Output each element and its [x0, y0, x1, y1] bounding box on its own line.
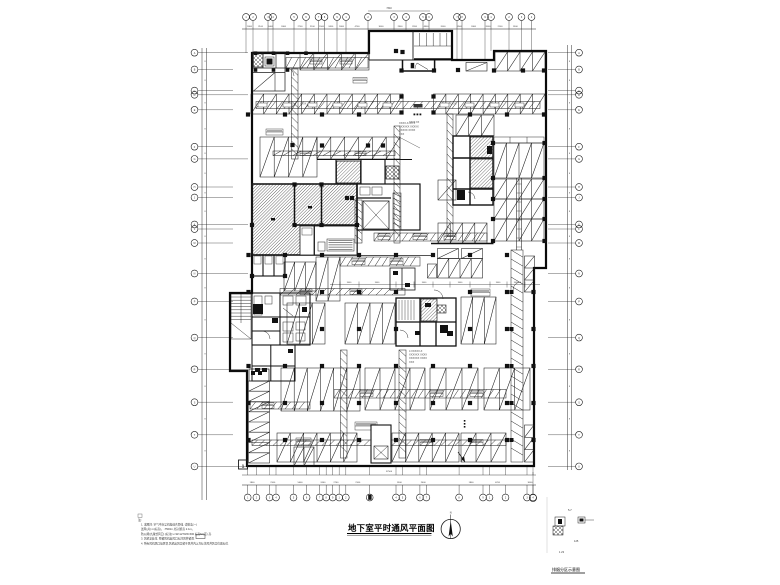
- svg-text:3500: 3500: [457, 26, 463, 28]
- svg-text:2100: 2100: [270, 482, 276, 484]
- svg-text:2000: 2000: [441, 26, 447, 28]
- svg-text:XXXXX XXXX: XXXXX XXXX: [399, 128, 416, 132]
- svg-text:1:150: 1:150: [426, 529, 433, 532]
- svg-text:2000: 2000: [486, 26, 492, 28]
- svg-text:M: M: [578, 242, 580, 245]
- svg-text:2100: 2100: [498, 26, 504, 28]
- svg-text:7340: 7340: [386, 7, 392, 10]
- svg-text:防火阀(九越式风口) [标注] L×W×H/70/W-50: 防火阀(九越式风口) [标注] L×W×H/70/W-500 标高M (压) 高…: [141, 532, 212, 536]
- svg-text:XXXXXX XXXXX: XXXXXX XXXXX: [399, 125, 419, 129]
- svg-text:XXXX: XXXX: [450, 103, 457, 106]
- svg-text:125: 125: [574, 539, 579, 543]
- svg-text:1800: 1800: [250, 482, 256, 484]
- svg-text:3000: 3000: [528, 482, 534, 484]
- svg-text:1500: 1500: [397, 482, 403, 484]
- svg-text:4700: 4700: [355, 26, 361, 28]
- svg-text:2400: 2400: [320, 482, 326, 484]
- svg-text:1800: 1800: [469, 482, 475, 484]
- svg-text:R: R: [578, 369, 580, 372]
- svg-text:注:: 注:: [138, 517, 142, 522]
- svg-text:D: D: [194, 94, 196, 97]
- svg-text:2700: 2700: [334, 482, 340, 484]
- svg-text:N: N: [578, 273, 580, 276]
- svg-text:XXXX: XXXX: [300, 103, 307, 106]
- svg-text:XXXXXX XXXX: XXXXXX XXXX: [409, 353, 427, 357]
- svg-text:XXX: XXX: [399, 132, 404, 136]
- svg-text:2400: 2400: [421, 482, 427, 484]
- svg-text:G: G: [194, 158, 196, 161]
- svg-text:4700: 4700: [495, 482, 501, 484]
- svg-text:1800: 1800: [247, 26, 253, 28]
- svg-text:2400: 2400: [471, 26, 477, 28]
- svg-text:U: U: [194, 466, 196, 469]
- svg-text:2200: 2200: [412, 26, 418, 28]
- svg-text:5-7: 5-7: [568, 508, 572, 512]
- svg-text:送风(共) m(标高)。-7500m, 核对梁高: 送风(共) m(标高)。-7500m, 核对梁高 2.1m。: [141, 527, 194, 531]
- svg-text:5400: 5400: [268, 26, 274, 28]
- svg-text:XXXXXX XXXX: XXXXXX XXXX: [409, 356, 427, 360]
- svg-text:5400: 5400: [298, 482, 304, 484]
- svg-text:M: M: [194, 242, 196, 245]
- svg-text:XXXX-X-XX X: XXXX-X-XX X: [399, 121, 416, 125]
- svg-text:XXX: XXX: [409, 360, 414, 364]
- svg-text:1800: 1800: [339, 26, 345, 28]
- svg-text:1500: 1500: [513, 26, 519, 28]
- svg-text:3. 风机安装位, 预留风机出风口标注风井留洞.: 3. 风机安装位, 预留风机出风口标注风井留洞.: [141, 537, 195, 541]
- svg-text:2800: 2800: [398, 26, 404, 28]
- svg-text:2100: 2100: [258, 26, 264, 28]
- svg-text:2100: 2100: [355, 482, 361, 484]
- svg-text:H: H: [578, 186, 580, 189]
- svg-text:H: H: [194, 186, 196, 189]
- svg-text:2400: 2400: [281, 26, 287, 28]
- svg-text:排烟分区示意图: 排烟分区示意图: [552, 566, 580, 572]
- svg-text:Q: Q: [194, 337, 196, 340]
- svg-text:57500: 57500: [386, 471, 393, 473]
- svg-text:Q: Q: [578, 337, 580, 340]
- svg-text:4. 所有风机风口接风管,风机出风口留于风井内上方标注风井风: 4. 所有风机风口接风管,风机出风口留于风井内上方标注风井风口位置标位.: [141, 541, 229, 545]
- svg-text:1. 本图注: 空气中灰尘机电综合管线, 详做法(一): 1. 本图注: 空气中灰尘机电综合管线, 详做法(一): [141, 523, 197, 527]
- svg-text:U: U: [578, 466, 580, 469]
- svg-text:地下室平时通风平面图: 地下室平时通风平面图: [348, 523, 435, 533]
- svg-text:1 23: 1 23: [559, 550, 565, 554]
- svg-text:G: G: [578, 158, 580, 161]
- svg-text:R: R: [194, 369, 196, 372]
- svg-text:2400: 2400: [328, 26, 334, 28]
- svg-text:2700: 2700: [298, 26, 304, 28]
- svg-text:4 XXXXX-X: 4 XXXXX-X: [409, 349, 423, 353]
- svg-text:N: N: [194, 273, 196, 276]
- svg-text:4800: 4800: [424, 26, 430, 28]
- svg-text:N: N: [450, 511, 452, 515]
- svg-text:D: D: [578, 94, 580, 97]
- svg-text:2100: 2100: [310, 26, 316, 28]
- svg-text:1500: 1500: [319, 26, 325, 28]
- svg-text:3000: 3000: [379, 26, 385, 28]
